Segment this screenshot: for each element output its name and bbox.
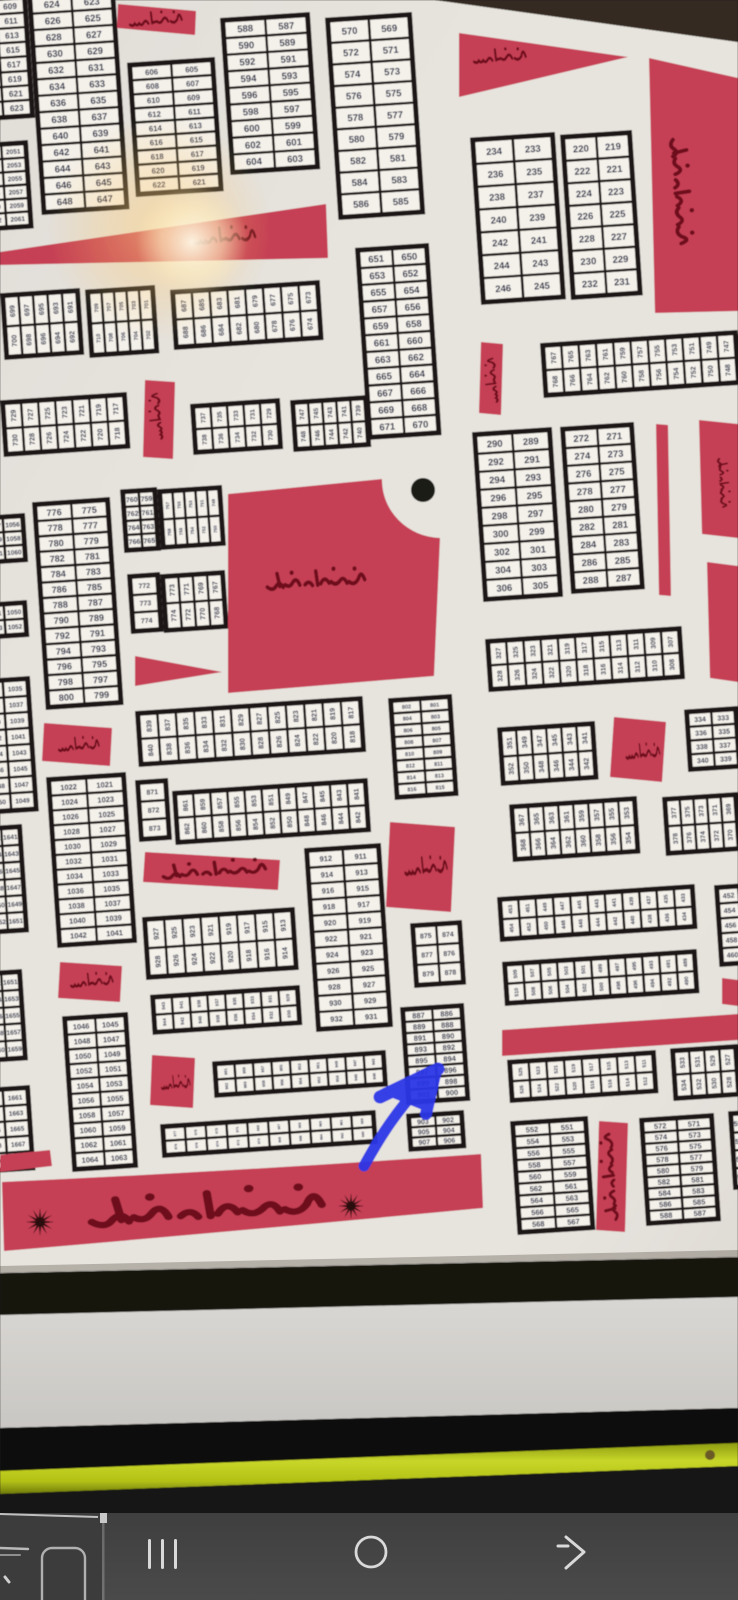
svg-text:697: 697 (22, 304, 32, 317)
svg-text:275: 275 (608, 466, 625, 478)
svg-text:651: 651 (368, 254, 385, 266)
svg-text:1049: 1049 (104, 1049, 121, 1059)
svg-text:341: 341 (580, 732, 590, 745)
svg-text:809: 809 (433, 750, 443, 757)
svg-text:366: 366 (533, 838, 543, 851)
svg-text:666: 666 (410, 386, 427, 398)
svg-text:938: 938 (215, 1014, 221, 1022)
svg-text:958: 958 (261, 1079, 266, 1087)
svg-text:804: 804 (403, 716, 413, 723)
svg-text:763: 763 (584, 349, 593, 361)
svg-text:452: 452 (723, 893, 735, 901)
svg-text:447: 447 (560, 901, 567, 910)
svg-text:931: 931 (267, 994, 273, 1002)
svg-text:760: 760 (126, 497, 138, 505)
svg-text:284: 284 (580, 539, 597, 551)
svg-text:826: 826 (274, 735, 284, 748)
svg-text:1655: 1655 (5, 1012, 20, 1020)
svg-text:872: 872 (148, 807, 160, 815)
svg-text:573: 573 (688, 1130, 701, 1140)
svg-text:576: 576 (655, 1144, 668, 1154)
svg-text:960: 960 (242, 1081, 247, 1089)
svg-text:288: 288 (582, 575, 599, 587)
svg-text:744: 744 (328, 429, 336, 441)
svg-text:755: 755 (653, 345, 662, 357)
svg-text:921: 921 (359, 932, 372, 942)
svg-text:738: 738 (201, 434, 209, 446)
svg-text:377: 377 (671, 807, 679, 819)
svg-text:596: 596 (241, 90, 258, 102)
svg-text:448: 448 (561, 920, 568, 929)
svg-text:576: 576 (346, 91, 363, 103)
svg-text:843: 843 (336, 789, 344, 801)
svg-text:726: 726 (44, 432, 54, 445)
svg-text:847: 847 (302, 791, 310, 803)
svg-text:365: 365 (532, 813, 542, 826)
svg-text:1056: 1056 (5, 521, 20, 529)
svg-text:906: 906 (443, 1137, 455, 1145)
svg-text:800: 800 (59, 692, 75, 703)
svg-text:314: 314 (617, 662, 625, 674)
svg-text:235: 235 (526, 166, 543, 178)
svg-text:458: 458 (726, 937, 738, 945)
svg-text:293: 293 (525, 472, 542, 484)
svg-text:877: 877 (421, 952, 433, 960)
svg-text:572: 572 (654, 1121, 667, 1131)
svg-text:781: 781 (84, 551, 100, 562)
svg-text:1058: 1058 (78, 1110, 95, 1120)
svg-text:567: 567 (567, 1217, 580, 1227)
svg-text:762: 762 (603, 372, 612, 384)
svg-text:783: 783 (85, 566, 101, 577)
svg-text:491: 491 (666, 959, 673, 968)
svg-text:1651: 1651 (3, 979, 18, 987)
svg-text:950: 950 (335, 1074, 340, 1082)
svg-text:245: 245 (534, 281, 551, 293)
svg-text:433: 433 (681, 893, 688, 902)
svg-text:503: 503 (564, 966, 571, 975)
svg-text:589: 589 (279, 37, 296, 49)
svg-text:336: 336 (695, 730, 707, 738)
svg-text:962: 962 (340, 1133, 344, 1139)
svg-text:222: 222 (574, 166, 591, 178)
svg-text:926: 926 (327, 966, 340, 976)
svg-text:671: 671 (379, 421, 396, 433)
svg-text:1034: 1034 (66, 871, 84, 881)
svg-text:595: 595 (282, 87, 299, 99)
svg-text:736: 736 (218, 432, 226, 444)
svg-text:949: 949 (334, 1060, 339, 1068)
svg-text:768: 768 (551, 375, 560, 387)
svg-text:749: 749 (705, 341, 714, 353)
svg-text:635: 635 (90, 95, 107, 107)
svg-text:731: 731 (249, 409, 257, 421)
svg-text:772: 772 (138, 583, 150, 591)
svg-text:722: 722 (78, 429, 88, 442)
svg-text:754: 754 (190, 526, 196, 534)
svg-text:297: 297 (527, 508, 544, 520)
svg-text:232: 232 (582, 279, 599, 291)
svg-text:530: 530 (711, 1077, 719, 1089)
svg-text:575: 575 (385, 88, 402, 100)
svg-text:1026: 1026 (62, 812, 79, 822)
svg-text:281: 281 (612, 519, 629, 531)
svg-text:339: 339 (720, 756, 732, 764)
svg-text:859: 859 (200, 798, 208, 810)
svg-text:219: 219 (605, 141, 622, 153)
svg-text:581: 581 (691, 1175, 704, 1185)
svg-text:898: 898 (445, 1077, 458, 1087)
svg-text:741: 741 (341, 405, 349, 417)
svg-text:228: 228 (579, 234, 596, 246)
svg-text:766: 766 (568, 374, 577, 386)
svg-text:764: 764 (586, 373, 595, 385)
svg-text:290: 290 (486, 439, 503, 451)
svg-text:669: 669 (378, 405, 395, 417)
svg-text:350: 350 (521, 761, 531, 774)
svg-text:246: 246 (495, 283, 512, 295)
svg-text:729: 729 (266, 407, 274, 419)
svg-text:231: 231 (614, 276, 631, 288)
svg-text:965: 965 (298, 1122, 302, 1128)
svg-text:1035: 1035 (8, 686, 23, 694)
svg-text:725: 725 (43, 407, 53, 420)
svg-text:678: 678 (270, 320, 280, 333)
svg-text:597: 597 (284, 104, 301, 116)
svg-text:758: 758 (638, 370, 647, 382)
svg-text:498: 498 (616, 981, 623, 990)
svg-text:308: 308 (669, 659, 677, 671)
svg-text:240: 240 (490, 215, 507, 227)
svg-text:335: 335 (718, 728, 730, 736)
svg-text:793: 793 (91, 643, 107, 654)
svg-text:746: 746 (314, 429, 322, 441)
svg-text:874: 874 (442, 931, 454, 939)
svg-text:236: 236 (487, 169, 504, 181)
svg-text:956: 956 (279, 1078, 284, 1086)
svg-text:732: 732 (251, 430, 259, 442)
svg-text:495: 495 (632, 961, 639, 970)
svg-text:733: 733 (233, 410, 241, 422)
svg-text:904: 904 (443, 1127, 455, 1135)
svg-text:692: 692 (67, 331, 77, 344)
svg-text:626: 626 (45, 16, 62, 28)
svg-text:799: 799 (94, 690, 110, 701)
svg-text:304: 304 (495, 565, 512, 577)
svg-text:814: 814 (406, 775, 416, 782)
svg-text:570: 570 (341, 26, 358, 38)
svg-text:661: 661 (374, 337, 391, 349)
svg-text:346: 346 (551, 759, 561, 772)
svg-text:662: 662 (408, 352, 425, 364)
svg-text:510: 510 (514, 988, 521, 997)
svg-text:765: 765 (567, 350, 576, 362)
svg-text:753: 753 (188, 500, 194, 508)
svg-text:278: 278 (577, 486, 594, 498)
svg-text:1641: 1641 (3, 834, 18, 842)
svg-text:1032: 1032 (65, 856, 82, 866)
svg-text:300: 300 (492, 529, 509, 541)
svg-text:441: 441 (612, 898, 619, 907)
svg-text:845: 845 (319, 790, 327, 802)
svg-text:677: 677 (268, 294, 278, 307)
svg-text:1035: 1035 (103, 884, 120, 894)
svg-text:795: 795 (92, 659, 108, 670)
svg-text:796: 796 (56, 661, 72, 672)
svg-text:835: 835 (181, 717, 191, 730)
svg-text:925: 925 (169, 926, 179, 939)
svg-text:501: 501 (581, 965, 588, 974)
svg-text:436: 436 (665, 913, 672, 922)
svg-text:936: 936 (233, 1013, 239, 1021)
svg-text:932: 932 (330, 1014, 343, 1024)
svg-text:1061: 1061 (109, 1138, 126, 1148)
svg-text:937: 937 (214, 998, 220, 1006)
svg-text:294: 294 (489, 474, 506, 486)
svg-text:586: 586 (659, 1199, 672, 1209)
svg-text:440: 440 (630, 915, 637, 924)
svg-text:895: 895 (415, 1056, 428, 1066)
svg-text:638: 638 (51, 114, 68, 126)
svg-text:555: 555 (562, 1146, 575, 1156)
svg-text:590: 590 (238, 40, 255, 52)
svg-text:917: 917 (242, 921, 252, 934)
svg-text:740: 740 (357, 427, 365, 439)
svg-text:774: 774 (141, 618, 153, 626)
svg-text:792: 792 (54, 630, 70, 641)
svg-text:574: 574 (344, 69, 361, 81)
svg-text:892: 892 (442, 1043, 455, 1053)
svg-text:571: 571 (687, 1119, 700, 1129)
svg-text:912: 912 (319, 854, 332, 864)
svg-text:730: 730 (10, 434, 20, 447)
svg-text:518: 518 (590, 1080, 597, 1089)
svg-text:657: 657 (371, 304, 388, 316)
svg-text:801: 801 (430, 702, 440, 709)
svg-text:696: 696 (38, 333, 48, 346)
svg-text:621: 621 (9, 88, 24, 99)
svg-text:1025: 1025 (98, 809, 115, 819)
svg-text:893: 893 (414, 1045, 427, 1055)
svg-text:765: 765 (143, 538, 155, 546)
svg-text:844: 844 (338, 812, 346, 824)
svg-text:285: 285 (614, 555, 631, 567)
svg-text:585: 585 (393, 196, 410, 208)
svg-text:1647: 1647 (6, 884, 21, 892)
svg-text:2055: 2055 (8, 175, 23, 183)
svg-text:920: 920 (324, 918, 337, 928)
svg-text:902: 902 (442, 1117, 454, 1125)
svg-text:842: 842 (355, 811, 363, 823)
svg-text:827: 827 (254, 713, 264, 726)
svg-text:623: 623 (84, 0, 101, 8)
svg-text:682: 682 (234, 322, 244, 335)
svg-text:582: 582 (350, 156, 367, 168)
svg-text:609: 609 (187, 93, 201, 103)
svg-text:734: 734 (234, 431, 242, 443)
svg-text:1050: 1050 (0, 799, 7, 807)
svg-text:569: 569 (381, 23, 398, 35)
svg-text:493: 493 (649, 960, 656, 969)
svg-text:572: 572 (343, 47, 360, 59)
svg-text:451: 451 (525, 903, 532, 912)
svg-text:435: 435 (663, 894, 670, 903)
svg-text:619: 619 (8, 73, 23, 84)
svg-text:1060: 1060 (7, 549, 22, 557)
svg-text:663: 663 (375, 354, 392, 366)
svg-text:437: 437 (646, 895, 653, 904)
svg-text:1665: 1665 (10, 1125, 25, 1133)
svg-text:556: 556 (527, 1148, 540, 1158)
svg-text:271: 271 (606, 431, 623, 443)
svg-text:694: 694 (53, 332, 63, 345)
svg-text:916: 916 (262, 948, 272, 961)
svg-text:670: 670 (412, 419, 429, 431)
svg-text:376: 376 (686, 832, 694, 844)
svg-text:923: 923 (360, 948, 373, 958)
svg-text:221: 221 (606, 164, 623, 176)
svg-text:751: 751 (688, 342, 697, 354)
svg-text:784: 784 (50, 569, 67, 580)
svg-text:499: 499 (598, 964, 605, 973)
svg-text:571: 571 (382, 45, 399, 57)
svg-text:857: 857 (217, 797, 225, 809)
svg-text:577: 577 (387, 110, 404, 122)
svg-text:803: 803 (431, 714, 441, 721)
svg-text:1060: 1060 (79, 1125, 96, 1135)
svg-text:922: 922 (207, 952, 217, 965)
svg-text:310: 310 (652, 660, 660, 672)
svg-text:303: 303 (531, 562, 548, 574)
svg-text:824: 824 (292, 734, 302, 747)
svg-text:239: 239 (529, 212, 546, 224)
svg-text:951: 951 (315, 1061, 320, 1069)
svg-text:940: 940 (197, 1015, 203, 1023)
svg-text:563: 563 (565, 1193, 578, 1203)
svg-text:900: 900 (445, 1088, 458, 1098)
svg-text:1051: 1051 (105, 1064, 122, 1074)
svg-text:241: 241 (531, 235, 548, 247)
svg-text:522: 522 (554, 1082, 561, 1091)
svg-text:244: 244 (493, 260, 510, 272)
svg-text:375: 375 (684, 806, 692, 818)
svg-text:1064: 1064 (81, 1155, 99, 1165)
svg-text:723: 723 (60, 406, 70, 419)
svg-text:511: 511 (641, 1059, 648, 1068)
svg-text:838: 838 (164, 743, 174, 756)
svg-text:274: 274 (574, 451, 591, 463)
svg-text:920: 920 (226, 950, 236, 963)
svg-text:891: 891 (413, 1033, 426, 1043)
svg-text:790: 790 (53, 615, 69, 626)
svg-text:593: 593 (281, 71, 298, 83)
svg-text:808: 808 (404, 740, 414, 747)
svg-text:347: 347 (535, 735, 545, 748)
svg-text:320: 320 (566, 665, 574, 677)
svg-text:935: 935 (232, 997, 238, 1005)
svg-text:787: 787 (87, 597, 103, 608)
svg-text:642: 642 (53, 147, 70, 159)
svg-text:617: 617 (7, 59, 22, 70)
svg-text:528: 528 (726, 1076, 734, 1088)
svg-text:496: 496 (633, 980, 640, 989)
svg-text:896: 896 (444, 1065, 457, 1075)
svg-text:878: 878 (444, 969, 456, 977)
svg-text:1042: 1042 (70, 931, 87, 941)
svg-text:957: 957 (260, 1065, 265, 1073)
svg-text:352: 352 (506, 762, 516, 775)
svg-text:846: 846 (321, 814, 329, 826)
svg-text:817: 817 (346, 706, 356, 719)
svg-text:507: 507 (530, 968, 537, 977)
svg-text:591: 591 (280, 54, 297, 66)
svg-text:660: 660 (407, 335, 424, 347)
svg-text:2061: 2061 (10, 216, 25, 224)
svg-text:730: 730 (267, 429, 275, 441)
svg-text:719: 719 (94, 404, 104, 417)
svg-text:601: 601 (286, 137, 303, 149)
svg-text:223: 223 (608, 186, 625, 198)
svg-text:609: 609 (3, 1, 18, 12)
svg-text:849: 849 (285, 793, 293, 805)
svg-text:862: 862 (184, 823, 192, 835)
svg-text:963: 963 (319, 1121, 323, 1127)
svg-text:819: 819 (328, 708, 338, 721)
svg-text:627: 627 (86, 29, 103, 41)
svg-text:773: 773 (167, 584, 177, 597)
svg-text:769: 769 (196, 582, 206, 595)
svg-text:305: 305 (532, 580, 549, 592)
svg-text:763: 763 (142, 524, 154, 532)
svg-text:764: 764 (128, 525, 140, 533)
svg-text:708: 708 (108, 333, 115, 343)
svg-text:1058: 1058 (6, 535, 21, 543)
svg-text:755: 755 (176, 501, 182, 509)
svg-text:1054: 1054 (76, 1081, 94, 1091)
svg-text:531: 531 (694, 1056, 702, 1068)
svg-text:598: 598 (242, 106, 259, 118)
svg-text:772: 772 (183, 608, 193, 621)
svg-text:945: 945 (371, 1058, 376, 1066)
svg-text:1024: 1024 (61, 797, 79, 807)
svg-text:580: 580 (657, 1166, 670, 1176)
svg-text:955: 955 (278, 1064, 283, 1072)
svg-text:343: 343 (565, 733, 575, 746)
svg-text:1023: 1023 (97, 795, 114, 805)
svg-text:623: 623 (10, 102, 25, 113)
svg-text:1021: 1021 (96, 780, 113, 790)
svg-text:355: 355 (607, 808, 617, 821)
svg-text:1037: 1037 (9, 702, 24, 710)
svg-text:925: 925 (361, 964, 374, 974)
svg-text:759: 759 (141, 496, 153, 504)
svg-text:1052: 1052 (75, 1066, 92, 1076)
svg-text:1045: 1045 (102, 1020, 119, 1030)
svg-text:823: 823 (291, 710, 301, 723)
svg-text:434: 434 (682, 912, 689, 921)
svg-text:953: 953 (297, 1062, 302, 1070)
svg-text:788: 788 (52, 599, 68, 610)
svg-text:367: 367 (517, 814, 527, 827)
svg-text:1652: 1652 (0, 919, 7, 927)
svg-text:786: 786 (51, 584, 67, 595)
svg-text:2051: 2051 (6, 148, 21, 156)
svg-text:907: 907 (418, 1139, 430, 1147)
svg-text:791: 791 (90, 628, 106, 639)
svg-text:698: 698 (24, 334, 34, 347)
svg-text:439: 439 (629, 897, 636, 906)
svg-text:680: 680 (252, 321, 262, 334)
